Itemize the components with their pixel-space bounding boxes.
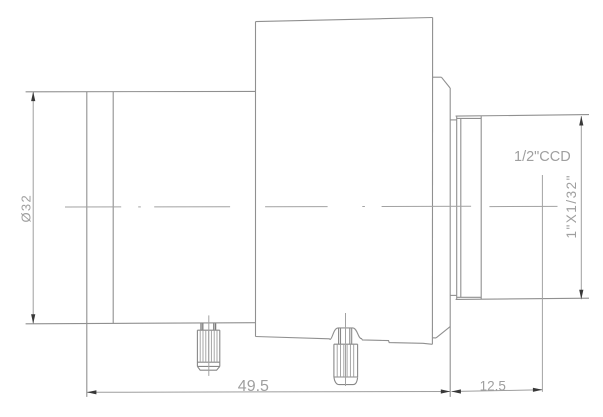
svg-text:49.5: 49.5 <box>238 378 269 395</box>
svg-text:1"X1/32": 1"X1/32" <box>564 174 579 238</box>
svg-text:12.5: 12.5 <box>480 378 506 393</box>
svg-text:1/2"CCD: 1/2"CCD <box>514 149 571 165</box>
svg-text:Ø32: Ø32 <box>18 194 33 222</box>
